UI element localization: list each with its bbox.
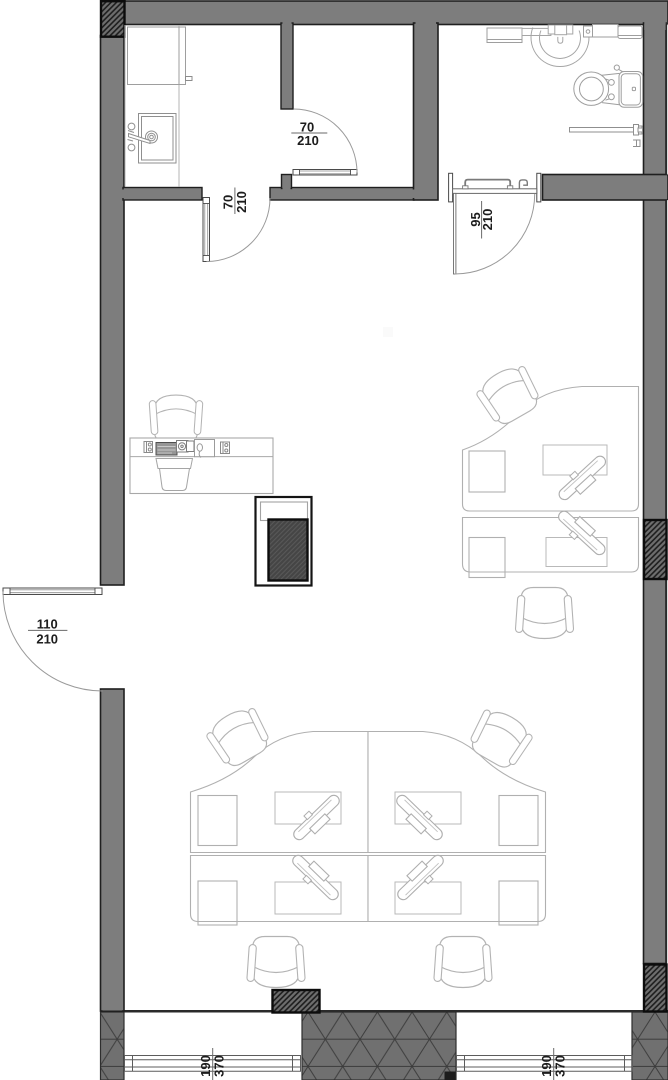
svg-text:210: 210 <box>297 133 319 148</box>
svg-text:210: 210 <box>234 191 249 213</box>
svg-text:370: 370 <box>553 1055 568 1077</box>
svg-text:370: 370 <box>212 1055 227 1077</box>
svg-text:210: 210 <box>36 632 58 647</box>
svg-text:210: 210 <box>480 209 495 231</box>
svg-text:110: 110 <box>37 617 58 632</box>
